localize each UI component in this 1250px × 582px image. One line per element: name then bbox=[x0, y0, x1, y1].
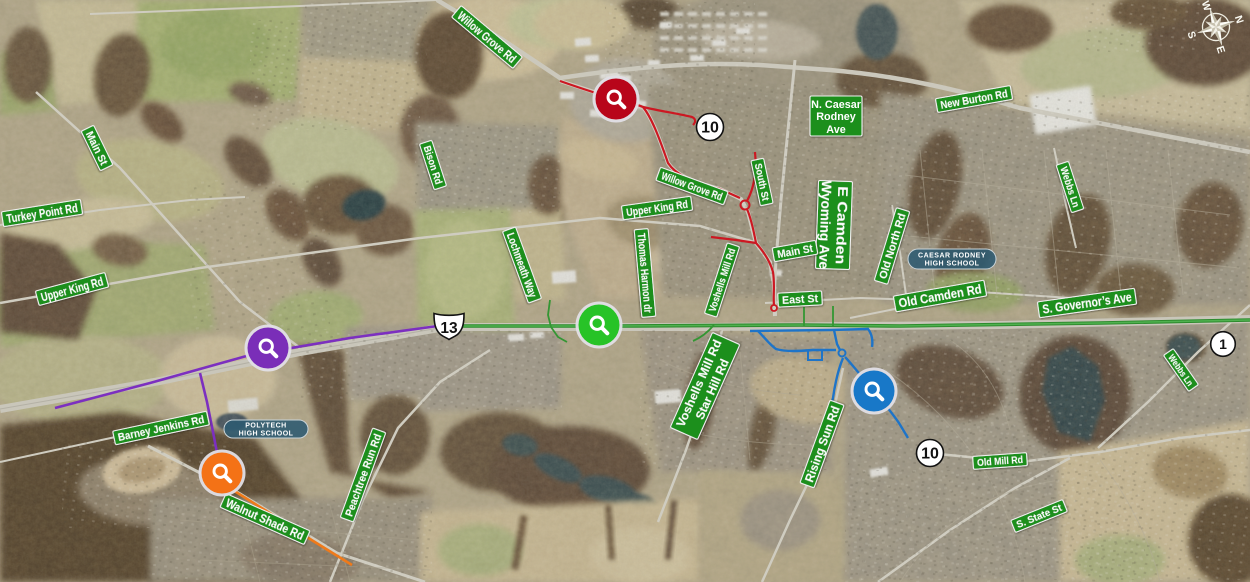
svg-text:13: 13 bbox=[440, 320, 458, 337]
svg-text:E CamdenWyoming Ave: E CamdenWyoming Ave bbox=[816, 180, 851, 270]
svg-text:POLYTECHHIGH SCHOOL: POLYTECHHIGH SCHOOL bbox=[239, 422, 294, 437]
svg-text:1: 1 bbox=[1219, 336, 1227, 352]
svg-text:East St: East St bbox=[782, 293, 819, 307]
svg-text:10: 10 bbox=[921, 445, 939, 462]
svg-text:10: 10 bbox=[701, 119, 719, 136]
svg-text:CAESAR RODNEYHIGH SCHOOL: CAESAR RODNEYHIGH SCHOOL bbox=[918, 252, 986, 267]
